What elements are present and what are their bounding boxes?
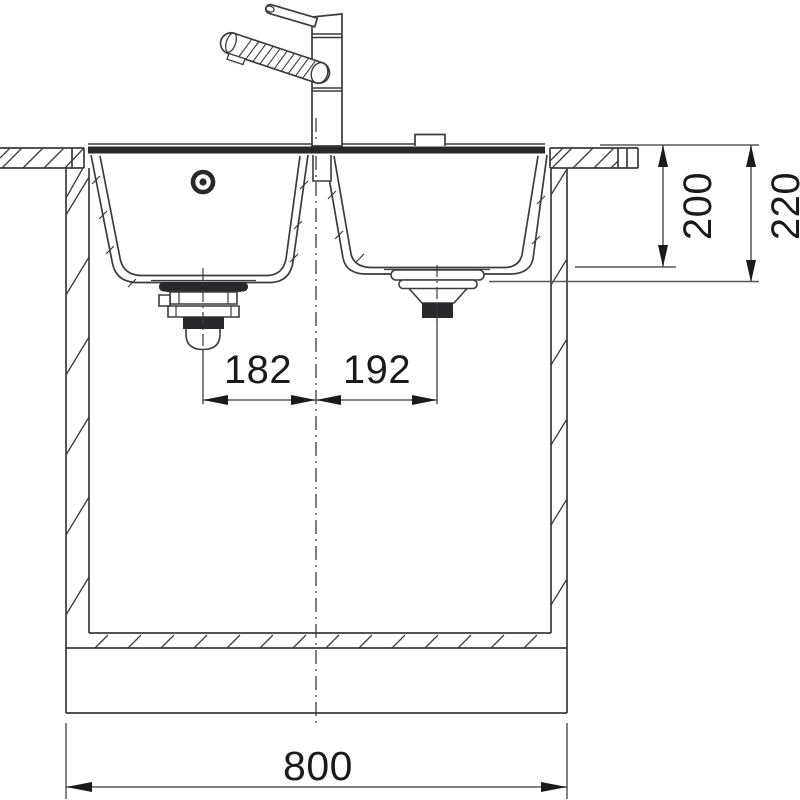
dim-label-bowl-depth: 200 [676,172,720,240]
arrow-down-icon [658,245,668,267]
countertop-left [0,148,84,168]
arrow-left-icon [203,395,228,405]
arrow-right-icon [291,395,316,405]
cabinet-left-wall [66,168,89,713]
arrow-right-icon [541,782,567,792]
arrow-down-icon [746,260,756,282]
cabinet-left-wall-hatch [66,168,89,615]
overflow-hole-center [199,178,206,185]
right-bowl [325,155,547,274]
left-bowl [91,155,308,287]
dimension-overall-width: 800 [66,723,567,799]
faucet [221,5,342,146]
arrow-right-icon [412,395,437,405]
sink-technical-drawing: 200 220 182 192 800 [0,0,800,800]
drawing-canvas: 200 220 182 192 800 [0,0,800,800]
arrow-left-icon [316,395,341,405]
dim-label-total-depth: 220 [764,172,800,240]
dim-label-right-drain-offset: 192 [343,348,411,392]
dim-label-left-drain-offset: 182 [224,348,292,392]
arrow-left-icon [66,782,92,792]
dim-label-overall-width: 800 [283,743,353,789]
dimension-drain-offsets: 182 192 [203,319,437,405]
arrow-up-icon [746,145,756,167]
countertop-right [550,148,638,168]
arrow-up-icon [658,145,668,167]
right-bowl-outer [325,155,547,274]
right-drain-assembly [384,265,490,324]
cabinet-right-wall-hatch [551,169,567,605]
dimension-bowl-depth: 200 [575,145,759,267]
rim-accessory-cover [415,135,445,147]
